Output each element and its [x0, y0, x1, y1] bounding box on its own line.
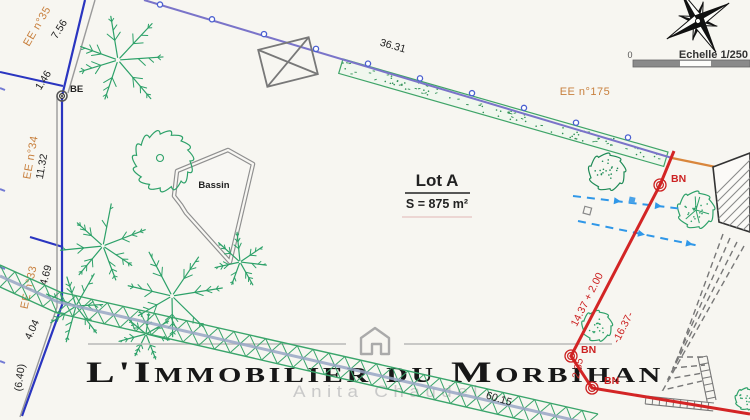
measure-left-1: 7.56: [49, 17, 70, 41]
top-boundary-line: [144, 0, 750, 174]
crossed-structure: [258, 37, 318, 86]
measure-right-2: -16.37-: [610, 310, 636, 346]
survey-square-marker: [628, 196, 635, 203]
dashed-structure: [663, 234, 744, 390]
bn-label-3: BN: [604, 375, 619, 387]
bn-label-1: BN: [671, 173, 686, 185]
measure-bottom: 60.15: [485, 390, 514, 409]
scalebar: [633, 60, 750, 67]
bassin-outline: [174, 150, 253, 262]
survey-plan: BE 36.31 7.56 1.46 11.32 4.69 4.04 (6.40…: [0, 0, 750, 420]
lot-area: S = 875 m²: [406, 197, 468, 211]
bn-label-2: BN: [581, 344, 596, 356]
bassin-label: Bassin: [198, 180, 229, 191]
lot-title: Lot A: [416, 171, 459, 190]
plan-canvas: BE 36.31 7.56 1.46 11.32 4.69 4.04 (6.40…: [0, 0, 750, 420]
arrowhead-icon: [637, 230, 645, 237]
left-boundary-lines: [0, 0, 95, 417]
measure-left-5: 4.04: [23, 318, 43, 342]
hedge-band: [339, 59, 668, 166]
measure-left-6: (6.40): [12, 363, 28, 392]
parcel-ee35: EE n°35: [21, 4, 53, 48]
be-label: BE: [70, 84, 83, 95]
edge-tick-marks: [0, 88, 5, 363]
survey-square-marker: [583, 206, 592, 215]
measure-top: 36.31: [379, 37, 408, 56]
scalebar-label: Echelle 1/250: [679, 49, 748, 61]
parcel-ee175: EE n°175: [560, 86, 611, 98]
arrowhead-icon: [685, 240, 693, 247]
scalebar-zero: 0: [627, 50, 632, 60]
measure-left-2: 1.46: [33, 68, 54, 92]
house-icon: [361, 328, 389, 354]
